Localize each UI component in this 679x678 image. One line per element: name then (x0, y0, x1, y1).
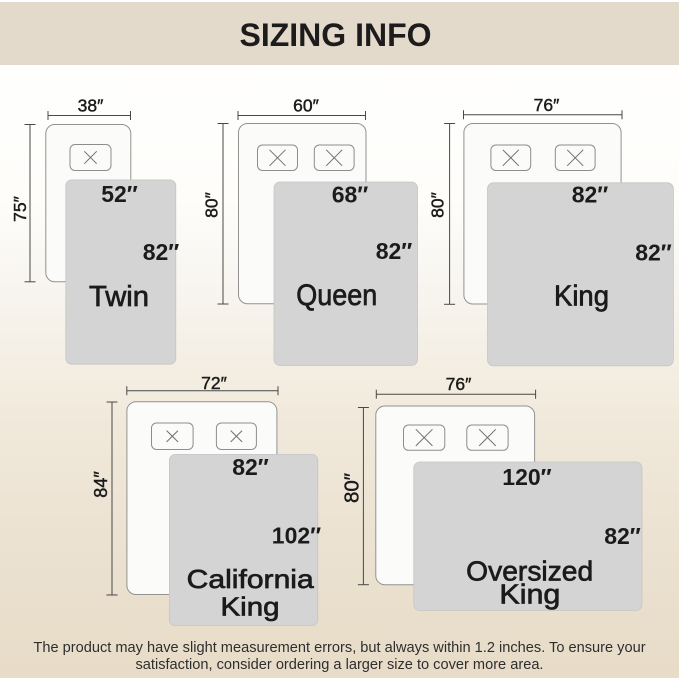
svg-text:38″: 38″ (78, 96, 104, 116)
svg-text:68″: 68″ (332, 181, 369, 207)
svg-text:82″: 82″ (232, 454, 269, 480)
svg-text:King: King (554, 281, 609, 313)
svg-text:120″: 120″ (502, 464, 551, 490)
svg-text:102″: 102″ (272, 522, 321, 548)
svg-text:72″: 72″ (201, 373, 227, 393)
svg-text:52″: 52″ (101, 181, 138, 207)
svg-text:80″: 80″ (427, 192, 447, 218)
svg-text:82″: 82″ (635, 239, 672, 265)
svg-text:60″: 60″ (293, 96, 319, 116)
svg-text:82″: 82″ (572, 181, 609, 207)
svg-text:76″: 76″ (446, 374, 472, 394)
svg-text:82″: 82″ (604, 523, 641, 549)
svg-text:Queen: Queen (296, 279, 377, 312)
svg-text:82″: 82″ (143, 239, 180, 265)
svg-text:California: California (187, 564, 315, 594)
svg-text:King: King (499, 579, 560, 610)
svg-text:84″: 84″ (91, 471, 111, 498)
svg-text:Twin: Twin (89, 281, 149, 313)
svg-text:King: King (221, 592, 280, 622)
svg-text:80″: 80″ (201, 192, 221, 218)
svg-text:80″: 80″ (340, 473, 363, 503)
svg-text:75″: 75″ (10, 196, 30, 222)
svg-text:76″: 76″ (534, 95, 560, 115)
svg-text:82″: 82″ (376, 238, 413, 264)
